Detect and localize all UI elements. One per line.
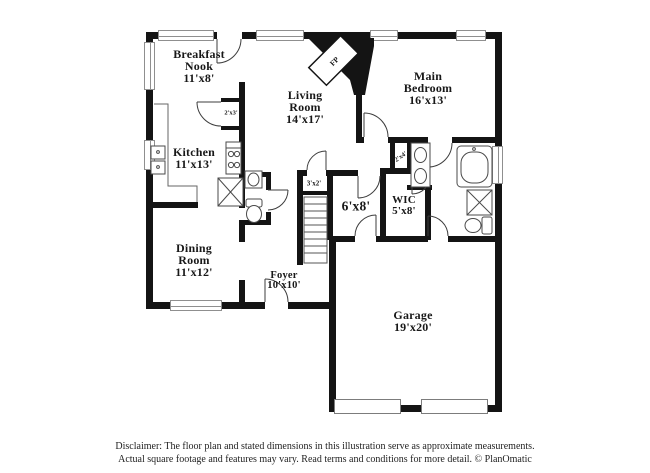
powder-door [268, 190, 288, 210]
pantry-door [197, 102, 221, 126]
wall [380, 174, 386, 240]
room-label-foyer: Foyer10'x10' [267, 260, 301, 302]
wall [327, 170, 333, 240]
toilet-icon [465, 217, 492, 234]
wall [266, 172, 271, 190]
window [144, 140, 155, 170]
wall [495, 32, 502, 412]
window [170, 300, 222, 311]
wall [329, 236, 355, 242]
powder-room-fixtures [245, 171, 262, 223]
window [492, 146, 503, 184]
wall [452, 137, 495, 143]
wall [425, 188, 431, 240]
closet-label-pantry: 2'x3' [224, 110, 237, 117]
wall [376, 236, 428, 242]
wall [297, 170, 303, 265]
vanity-icon [411, 143, 430, 187]
window [370, 30, 398, 41]
wall [221, 98, 239, 102]
closet-label-hall: 3'x2' [307, 181, 321, 188]
disclaimer-line-1: Disclaimer: The floor plan and stated di… [0, 440, 650, 453]
room-label-dining-room: Dining Room11'x12' [175, 230, 212, 290]
window [144, 42, 155, 90]
disclaimer-text: Disclaimer: The floor plan and stated di… [0, 440, 650, 466]
wall [146, 202, 198, 208]
wall [239, 225, 245, 242]
garage-door [334, 399, 401, 414]
room-label-garage: Garage19'x20' [393, 297, 432, 345]
floorplan-drawing: FP [0, 0, 650, 473]
room-label-breakfast-nook: Breakfast Nook11'x8' [173, 36, 225, 96]
room-label-main-bedroom: Main Bedroom16'x13' [404, 58, 453, 118]
fireplace-label: FP [328, 55, 341, 68]
wall [221, 126, 239, 130]
wall [266, 212, 271, 225]
disclaimer-line-2: Actual square footage and features may v… [0, 453, 650, 466]
wall [239, 82, 245, 208]
garage-door [421, 399, 488, 414]
wall [356, 137, 364, 143]
toilet-room-door [428, 216, 448, 236]
wall [390, 143, 395, 168]
wall [239, 280, 245, 302]
room-label-kitchen: Kitchen11'x13' [173, 134, 215, 182]
floor-plan: FP [0, 0, 650, 473]
wall [448, 236, 502, 242]
window [256, 30, 304, 41]
bath-door [428, 143, 452, 167]
room-label-living-room: Living Room14'x17' [286, 77, 324, 137]
bedroom-door [364, 113, 388, 137]
wall [329, 236, 336, 412]
bathtub-icon [457, 146, 492, 187]
wall [356, 38, 362, 137]
wall [303, 191, 327, 195]
room-label-wic: WIC5'x8' [392, 184, 416, 228]
stairs [304, 197, 327, 263]
room-label-6x8: 6'x8' [342, 187, 371, 226]
shower-icon [467, 190, 492, 215]
toilet-icon [246, 199, 262, 223]
hall-closet-door [307, 151, 326, 170]
window [456, 30, 486, 41]
